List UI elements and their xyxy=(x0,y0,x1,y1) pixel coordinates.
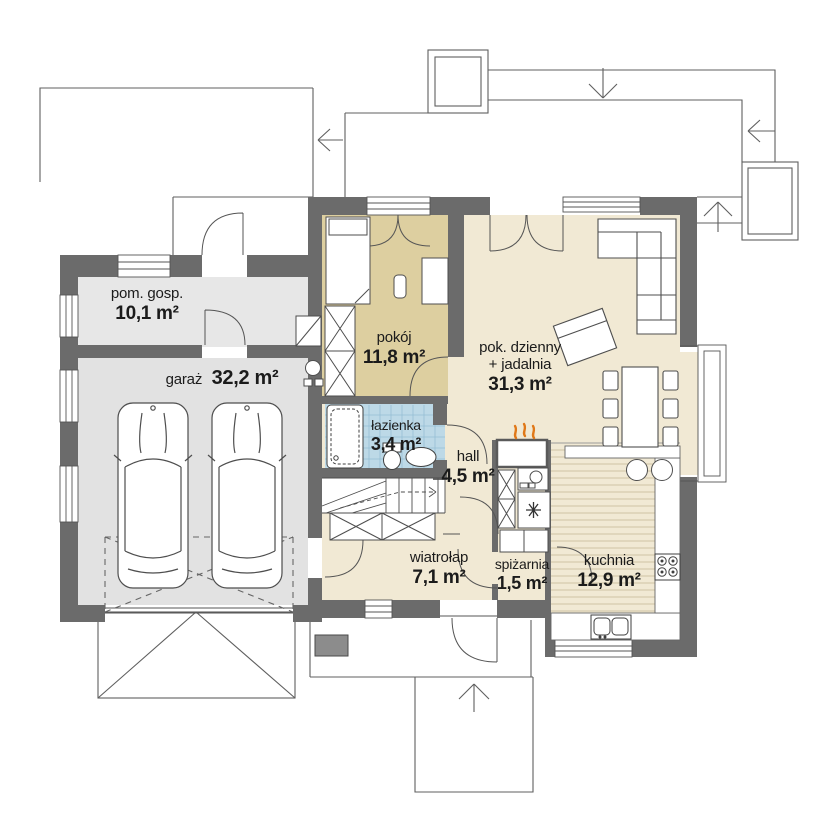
window xyxy=(60,466,78,522)
desk-icon xyxy=(422,258,448,304)
room-area: 11,8 m² xyxy=(363,347,425,368)
pantry-counter xyxy=(500,530,548,552)
equipment-box-icon xyxy=(296,316,321,346)
bed-icon xyxy=(326,217,370,304)
porch-pillar xyxy=(315,635,348,656)
room-name: pokój xyxy=(363,330,425,347)
kitchen-sink-icon xyxy=(591,615,631,639)
room-label-lazienka: łazienka 3,4 m² xyxy=(371,418,421,454)
car-icon xyxy=(208,403,286,588)
room-name-2: + jadalnia xyxy=(479,357,561,374)
window xyxy=(365,600,392,618)
roof-arrow-icon xyxy=(748,120,775,142)
room-area: 31,3 m² xyxy=(479,374,561,395)
chair-icon xyxy=(394,275,406,298)
room-label-garaz: garaż 32,2 m² xyxy=(166,367,279,389)
room-label-kuchnia: kuchnia 12,9 m² xyxy=(577,553,640,591)
bay-floor xyxy=(680,352,698,475)
fireplace-column xyxy=(497,424,550,552)
room-name: kuchnia xyxy=(577,553,640,570)
bathtub-icon xyxy=(327,405,363,468)
room-area: 7,1 m² xyxy=(410,567,468,588)
roof-arrow-icon xyxy=(704,202,732,232)
front-door-swing xyxy=(440,616,497,662)
kitchen-counter xyxy=(655,458,680,613)
room-label-pom-gosp: pom. gosp. 10,1 m² xyxy=(111,286,183,324)
floor-plan: pom. gosp. 10,1 m² garaż 32,2 m² pokój 1… xyxy=(0,0,837,829)
room-name: pom. gosp. xyxy=(111,286,183,303)
entrance-arrow-icon xyxy=(459,684,489,712)
room-label-hall: hall 4,5 m² xyxy=(441,449,494,487)
room-name: spiżarnia xyxy=(495,557,549,573)
roof-arrow-icon xyxy=(318,129,343,151)
fireplace-icon xyxy=(497,440,547,467)
room-label-wiatrolap: wiatrołap 7,1 m² xyxy=(410,550,468,588)
room-area: 32,2 m² xyxy=(212,367,279,389)
room-name: garaż xyxy=(166,372,203,389)
hall-wardrobe-icon xyxy=(330,513,435,540)
garage-canopy-hips xyxy=(98,612,295,698)
room-area: 3,4 m² xyxy=(371,434,421,454)
room-name: wiatrołap xyxy=(410,550,468,567)
roof-arrow-icon xyxy=(589,68,617,98)
roof-window-inner xyxy=(748,168,792,234)
chimney-inner xyxy=(435,57,481,106)
room-area: 12,9 m² xyxy=(577,570,640,591)
room-area: 4,5 m² xyxy=(441,466,494,487)
bar-stool-icon xyxy=(652,460,673,481)
hob-icon xyxy=(655,554,680,580)
fridge-icon xyxy=(518,492,550,528)
car-icon xyxy=(114,403,192,588)
window xyxy=(563,197,640,212)
room-name: hall xyxy=(441,449,494,466)
room-label-pok-dzienny: pok. dzienny + jadalnia 31,3 m² xyxy=(479,340,561,395)
door-swing xyxy=(202,213,243,255)
window xyxy=(60,370,78,422)
bar-counter xyxy=(565,446,680,458)
floor-plan-drawing xyxy=(0,0,837,829)
bar-stool-icon xyxy=(627,460,648,481)
room-area: 10,1 m² xyxy=(111,303,183,324)
room-name: łazienka xyxy=(371,418,421,434)
room-area: 1,5 m² xyxy=(495,573,549,593)
window xyxy=(555,640,632,657)
window xyxy=(118,255,170,277)
tall-cabinet-icon xyxy=(498,470,515,528)
garage-canopy xyxy=(98,612,295,698)
dining-table-icon xyxy=(622,367,658,447)
oven-icon xyxy=(518,468,548,490)
room-label-pokoj: pokój 11,8 m² xyxy=(363,330,425,368)
window xyxy=(60,295,78,337)
wardrobe-icon xyxy=(325,306,355,396)
room-label-spizarnia: spiżarnia 1,5 m² xyxy=(495,557,549,593)
window xyxy=(367,197,430,215)
room-name: pok. dzienny xyxy=(479,340,561,357)
